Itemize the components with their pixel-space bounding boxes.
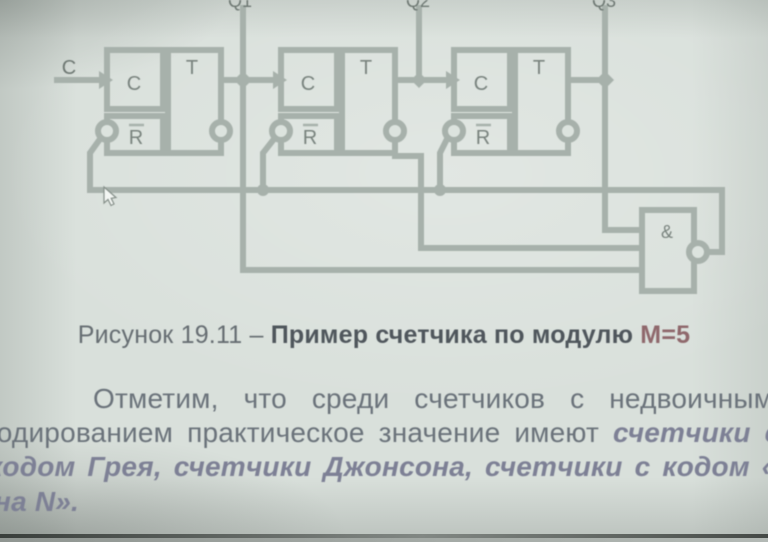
figure-caption-title: Пример счетчика по модулю bbox=[271, 321, 641, 349]
ff1-clock-label: C bbox=[127, 73, 141, 95]
nand-gate: & bbox=[642, 210, 707, 291]
below-screen-area bbox=[0, 538, 768, 542]
figure-caption-highlight: М=5 bbox=[640, 321, 690, 349]
paragraph-line-3: кодом Грея, счетчики Джонсона, счетчики … bbox=[0, 451, 768, 483]
output-label-q1: Q1 bbox=[228, 0, 252, 11]
flipflop-2: C T R bbox=[272, 50, 404, 153]
output-label-q3: Q3 bbox=[592, 0, 616, 11]
ff1-reset-circle-icon bbox=[98, 122, 116, 140]
ff2-mode-label: T bbox=[360, 57, 372, 79]
figure-caption-number: Рисунок 19.11 – bbox=[78, 321, 271, 349]
ff2-inverted-output-circle-icon bbox=[386, 122, 404, 140]
paragraph-line-2-emphasis: счетчики с bbox=[613, 417, 768, 448]
ff1-reset-label: R bbox=[129, 127, 143, 149]
slide-photo: C T R C T R bbox=[0, 0, 768, 542]
q3-junction bbox=[596, 71, 614, 89]
clock-input-label: C bbox=[62, 57, 76, 79]
ff3-clock-label: C bbox=[474, 73, 488, 95]
ff3-reset-label: R bbox=[476, 127, 490, 149]
paragraph-line-1: Отметим, что среди счетчиков с недвоичны… bbox=[93, 383, 768, 415]
ff2-reset-circle-icon bbox=[272, 122, 290, 140]
ff3-reset-stub bbox=[440, 139, 447, 190]
q2-junction bbox=[411, 72, 427, 88]
q1-junction bbox=[234, 71, 252, 89]
ff3-reset-junction-dot bbox=[434, 184, 446, 196]
paragraph-line-2: кодированием практическое значение имеют… bbox=[0, 417, 768, 449]
ff2-clock-label: C bbox=[301, 73, 315, 95]
ff2-reset-junction-dot bbox=[257, 184, 269, 196]
ff1-inverted-output-circle-icon bbox=[212, 122, 230, 140]
q3-wire bbox=[605, 8, 642, 230]
flipflop-3: C T R bbox=[445, 50, 577, 153]
ff3-mode-label: T bbox=[533, 57, 545, 79]
figure-caption: Рисунок 19.11 – Пример счетчика по модул… bbox=[78, 321, 690, 350]
paragraph-line-2-normal: кодированием практическое значение имеют bbox=[0, 417, 613, 448]
ff3-inverted-output-circle-icon bbox=[559, 122, 577, 140]
paragraph-line-4: на N». bbox=[0, 486, 79, 518]
nand-output-circle-icon bbox=[689, 243, 707, 261]
output-label-q2: Q2 bbox=[406, 0, 430, 11]
ff3-reset-circle-icon bbox=[445, 122, 463, 140]
ff2-reset-stub bbox=[263, 139, 274, 190]
flipflop-1: C T R bbox=[98, 50, 230, 153]
circuit-diagram: C T R C T R bbox=[0, 0, 768, 310]
ff2-reset-label: R bbox=[303, 127, 317, 149]
ff1-mode-label: T bbox=[186, 57, 198, 79]
nand-gate-label: & bbox=[661, 222, 673, 242]
